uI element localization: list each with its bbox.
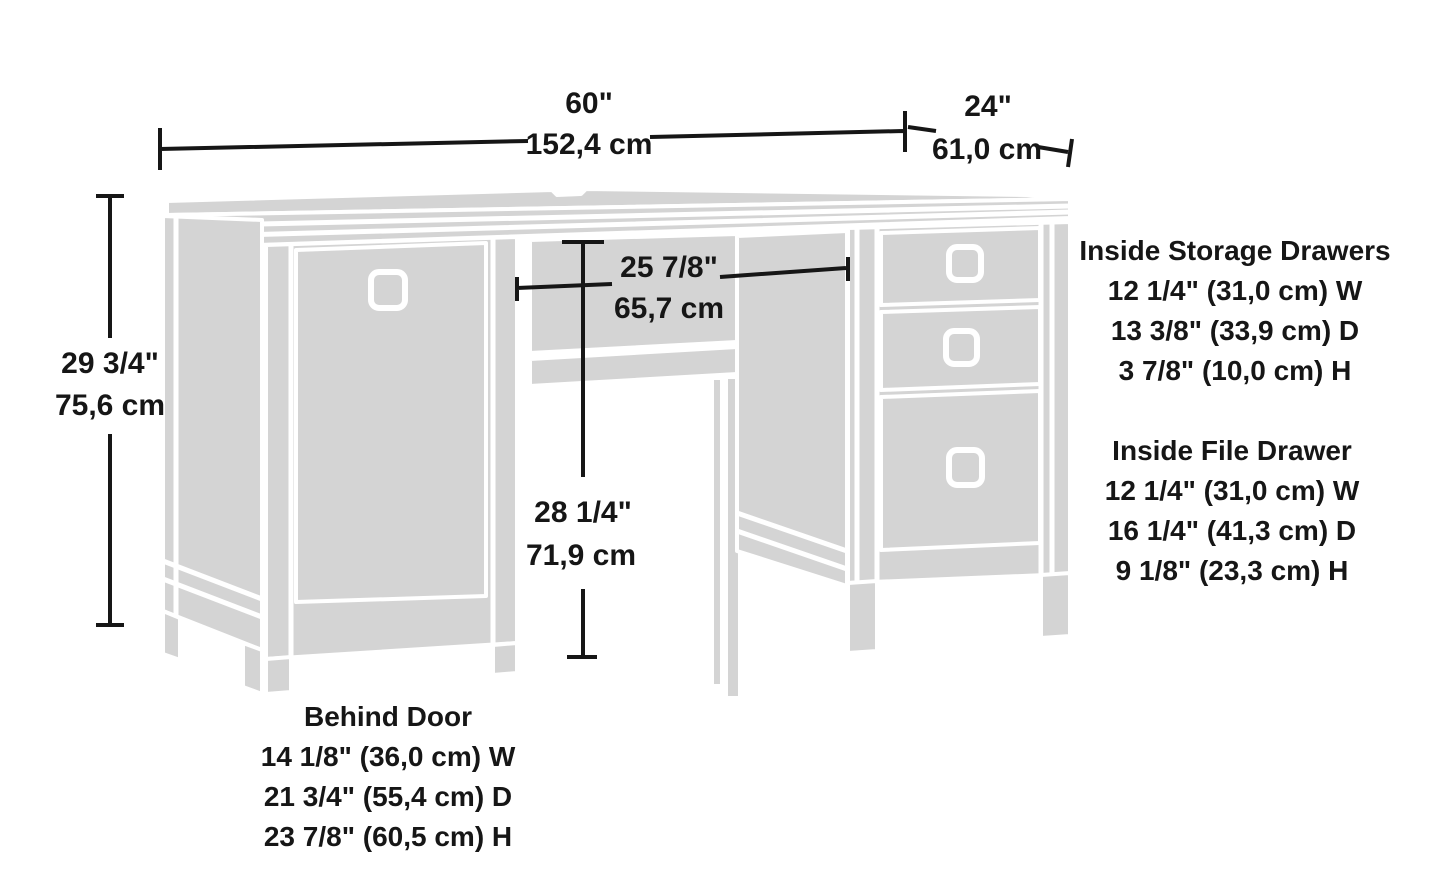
storage-drawer-2 [881, 307, 1040, 390]
right-pedestal-right-leg [1041, 573, 1070, 638]
height-inches-label: 29 3/4" [61, 346, 159, 382]
file-drawer [881, 391, 1040, 550]
knee-width-cm-label: 65,7 cm [614, 291, 724, 327]
left-end-front-leg [243, 643, 262, 694]
behind-door-width: 14 1/8" (36,0 cm) W [261, 737, 516, 777]
width-inches-label: 60" [565, 86, 613, 122]
left-pedestal-left-leg [266, 657, 291, 694]
inside-storage-drawers-height: 3 7/8" (10,0 cm) H [1079, 351, 1390, 391]
cabinet-door [296, 243, 486, 602]
inside-storage-drawers-note: Inside Storage Drawers 12 1/4" (31,0 cm)… [1079, 231, 1390, 391]
knee-width-inches-label: 25 7/8" [620, 250, 718, 286]
width-cm-label: 152,4 cm [526, 127, 653, 163]
knee-height-inches-label: 28 1/4" [534, 495, 632, 531]
depth-cm-label: 61,0 cm [932, 132, 1042, 168]
left-pedestal [266, 237, 517, 694]
behind-door-depth: 21 3/4" (55,4 cm) D [261, 777, 516, 817]
left-pedestal-right-leg [493, 643, 517, 675]
right-pedestal-left-leg [848, 581, 877, 653]
inside-file-drawer-width: 12 1/4" (31,0 cm) W [1105, 471, 1360, 511]
right-pedestal [737, 222, 1070, 653]
height-cm-label: 75,6 cm [55, 388, 165, 424]
inside-storage-drawers-title: Inside Storage Drawers [1079, 231, 1390, 271]
inside-storage-drawers-width: 12 1/4" (31,0 cm) W [1079, 271, 1390, 311]
dimension-diagram: 60" 152,4 cm 24" 61,0 cm 29 3/4" 75,6 cm… [0, 0, 1445, 879]
left-end-panel [163, 216, 262, 694]
behind-door-title: Behind Door [261, 697, 516, 737]
inside-file-drawer-title: Inside File Drawer [1105, 431, 1360, 471]
behind-door-height: 23 7/8" (60,5 cm) H [261, 817, 516, 857]
desk [163, 189, 1070, 698]
storage-drawer-1 [881, 228, 1040, 305]
behind-door-note: Behind Door 14 1/8" (36,0 cm) W 21 3/4" … [261, 697, 516, 857]
inside-file-drawer-depth: 16 1/4" (41,3 cm) D [1105, 511, 1360, 551]
inside-file-drawer-height: 9 1/8" (23,3 cm) H [1105, 551, 1360, 591]
knee-height-cm-label: 71,9 cm [526, 538, 636, 574]
left-end-back-leg [163, 611, 180, 660]
inside-storage-drawers-depth: 13 3/8" (33,9 cm) D [1079, 311, 1390, 351]
depth-inches-label: 24" [964, 89, 1012, 125]
inside-file-drawer-note: Inside File Drawer 12 1/4" (31,0 cm) W 1… [1105, 431, 1360, 591]
center-back-leg [712, 378, 722, 686]
